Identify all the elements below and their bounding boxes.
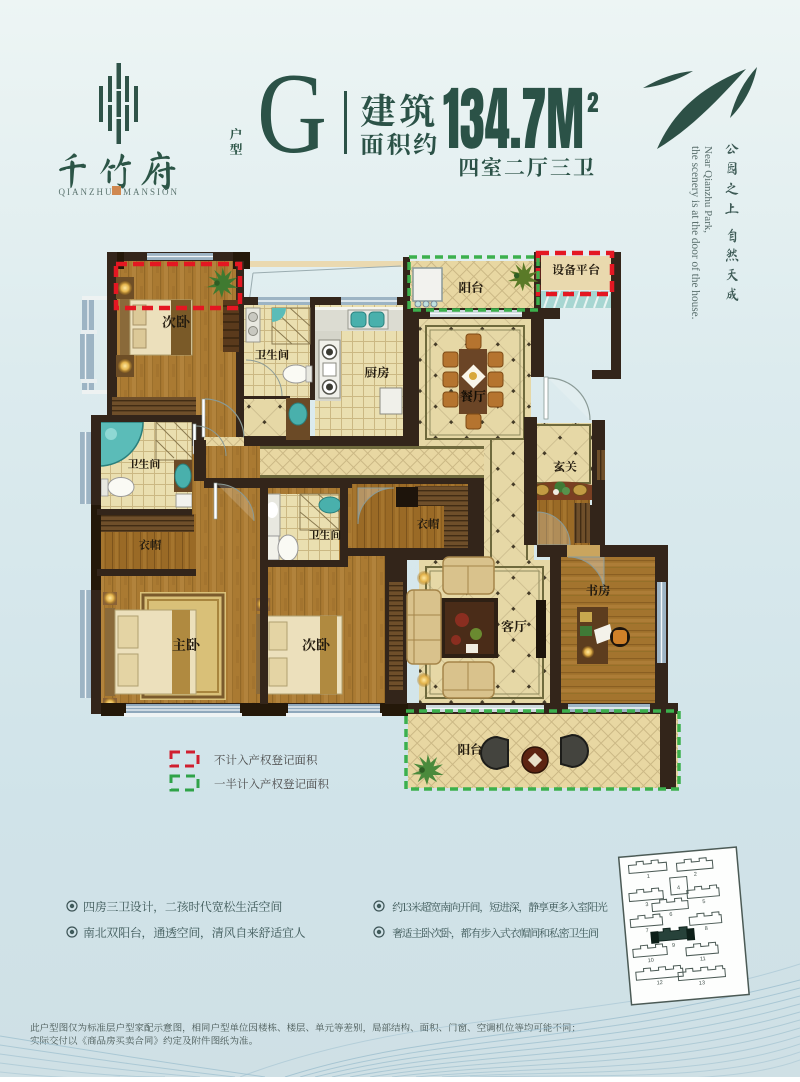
svg-text:G: G	[257, 50, 327, 177]
svg-text:Near Qianzhu Park,: Near Qianzhu Park,	[702, 146, 714, 233]
svg-text:the scenery is at the door of: the scenery is at the door of the house.	[689, 146, 701, 320]
svg-text:玄关: 玄关	[553, 458, 577, 475]
svg-text:2: 2	[587, 85, 599, 120]
svg-text:衣帽: 衣帽	[417, 516, 440, 532]
svg-text:南北双阳台，通透空间，清风自来舒适宜人: 南北双阳台，通透空间，清风自来舒适宜人	[83, 924, 306, 941]
svg-text:面积约: 面积约	[360, 125, 440, 160]
svg-text:3: 3	[645, 902, 649, 908]
svg-text:千竹府: 千竹府	[53, 150, 182, 192]
svg-text:衣帽: 衣帽	[139, 537, 162, 553]
svg-text:卫生间: 卫生间	[255, 347, 290, 363]
svg-text:自然天成: 自然天成	[724, 228, 740, 306]
svg-text:主卧: 主卧	[172, 635, 200, 655]
svg-text:此户型图仅为标准层户型家配示意图，相同户型单位因楼栋、楼层、: 此户型图仅为标准层户型家配示意图，相同户型单位因楼栋、楼层、单元等差别，局部结构…	[30, 1020, 581, 1034]
svg-text:型: 型	[229, 139, 242, 158]
svg-text:四室二厅三卫: 四室二厅三卫	[458, 152, 596, 182]
svg-text:1: 1	[647, 874, 651, 880]
svg-text:10: 10	[648, 958, 655, 965]
svg-text:四房三卫设计，二孩时代宽松生活空间: 四房三卫设计，二孩时代宽松生活空间	[83, 898, 282, 915]
svg-text:卫生间: 卫生间	[309, 527, 342, 543]
svg-text:奢适主卧次卧，都有步入式衣帽间和私密卫生间: 奢适主卧次卧，都有步入式衣帽间和私密卫生间	[392, 925, 599, 941]
svg-text:厨房: 厨房	[364, 363, 390, 381]
svg-text:卫生间: 卫生间	[128, 456, 161, 472]
svg-text:阳台: 阳台	[457, 740, 482, 758]
svg-text:13: 13	[699, 980, 706, 987]
svg-text:QIANZHU: QIANZHU	[59, 187, 114, 197]
svg-text:约13米超宽南向开间，短进深，静享更多入室阳光: 约13米超宽南向开间，短进深，静享更多入室阳光	[392, 899, 608, 915]
svg-text:不计入产权登记面积: 不计入产权登记面积	[214, 752, 318, 768]
svg-text:次卧: 次卧	[162, 312, 190, 332]
svg-text:8: 8	[704, 926, 708, 932]
svg-text:11: 11	[700, 956, 706, 962]
svg-text:实际交付以《商品房买卖合同》约定及附件图纸为准。: 实际交付以《商品房买卖合同》约定及附件图纸为准。	[30, 1033, 258, 1047]
svg-text:12: 12	[657, 980, 664, 987]
svg-text:5: 5	[702, 899, 706, 905]
svg-text:6: 6	[669, 912, 673, 918]
svg-text:客厅: 客厅	[501, 616, 527, 635]
svg-text:书房: 书房	[585, 581, 611, 599]
svg-text:次卧: 次卧	[302, 635, 330, 655]
svg-text:4: 4	[677, 885, 681, 891]
svg-text:MANSION: MANSION	[123, 187, 179, 197]
svg-text:阳台: 阳台	[458, 278, 483, 296]
svg-text:一半计入产权登记面积: 一半计入产权登记面积	[214, 776, 329, 792]
svg-text:公园之上: 公园之上	[724, 141, 740, 221]
svg-text:2: 2	[694, 872, 698, 878]
svg-text:9: 9	[672, 943, 676, 949]
svg-text:设备平台: 设备平台	[552, 261, 600, 278]
svg-text:7: 7	[645, 928, 649, 934]
svg-text:餐厅: 餐厅	[460, 386, 486, 405]
